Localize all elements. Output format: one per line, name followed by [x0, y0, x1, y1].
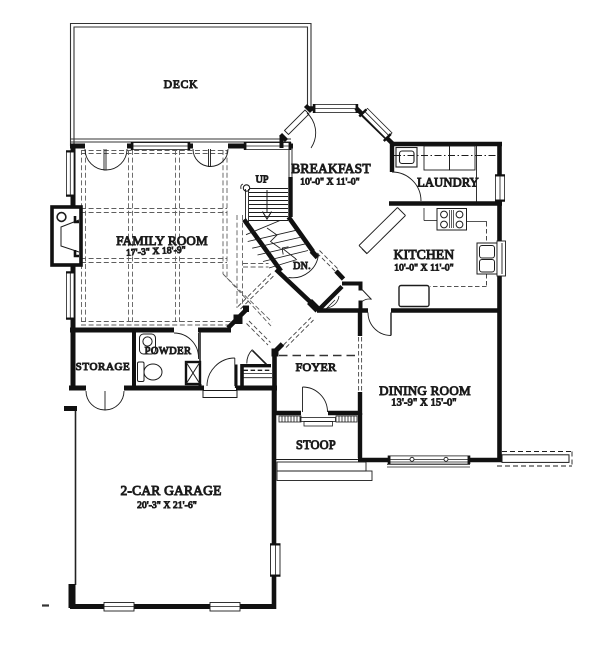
svg-text:STORAGE: STORAGE: [76, 361, 131, 373]
svg-text:DECK: DECK: [164, 79, 199, 91]
svg-text:2-CAR GARAGE: 2-CAR GARAGE: [120, 483, 221, 498]
svg-text:10'-0" X 11'-0": 10'-0" X 11'-0": [394, 264, 454, 274]
svg-text:13'-9" X 15'-0": 13'-9" X 15'-0": [391, 398, 456, 409]
svg-text:STOOP: STOOP: [296, 438, 336, 452]
svg-text:DN.: DN.: [293, 261, 311, 272]
svg-text:10'-0" X 11'-0": 10'-0" X 11'-0": [300, 178, 360, 188]
svg-text:UP: UP: [256, 175, 269, 186]
svg-text:FOYER: FOYER: [296, 360, 337, 374]
svg-text:BREAKFAST: BREAKFAST: [291, 161, 371, 176]
svg-text:LAUNDRY: LAUNDRY: [417, 176, 479, 190]
svg-text:DINING ROOM: DINING ROOM: [379, 383, 471, 398]
svg-text:KITCHEN: KITCHEN: [394, 247, 455, 262]
svg-text:POWDER: POWDER: [145, 346, 192, 357]
svg-text:20'-3" X 21'-6": 20'-3" X 21'-6": [137, 501, 197, 511]
